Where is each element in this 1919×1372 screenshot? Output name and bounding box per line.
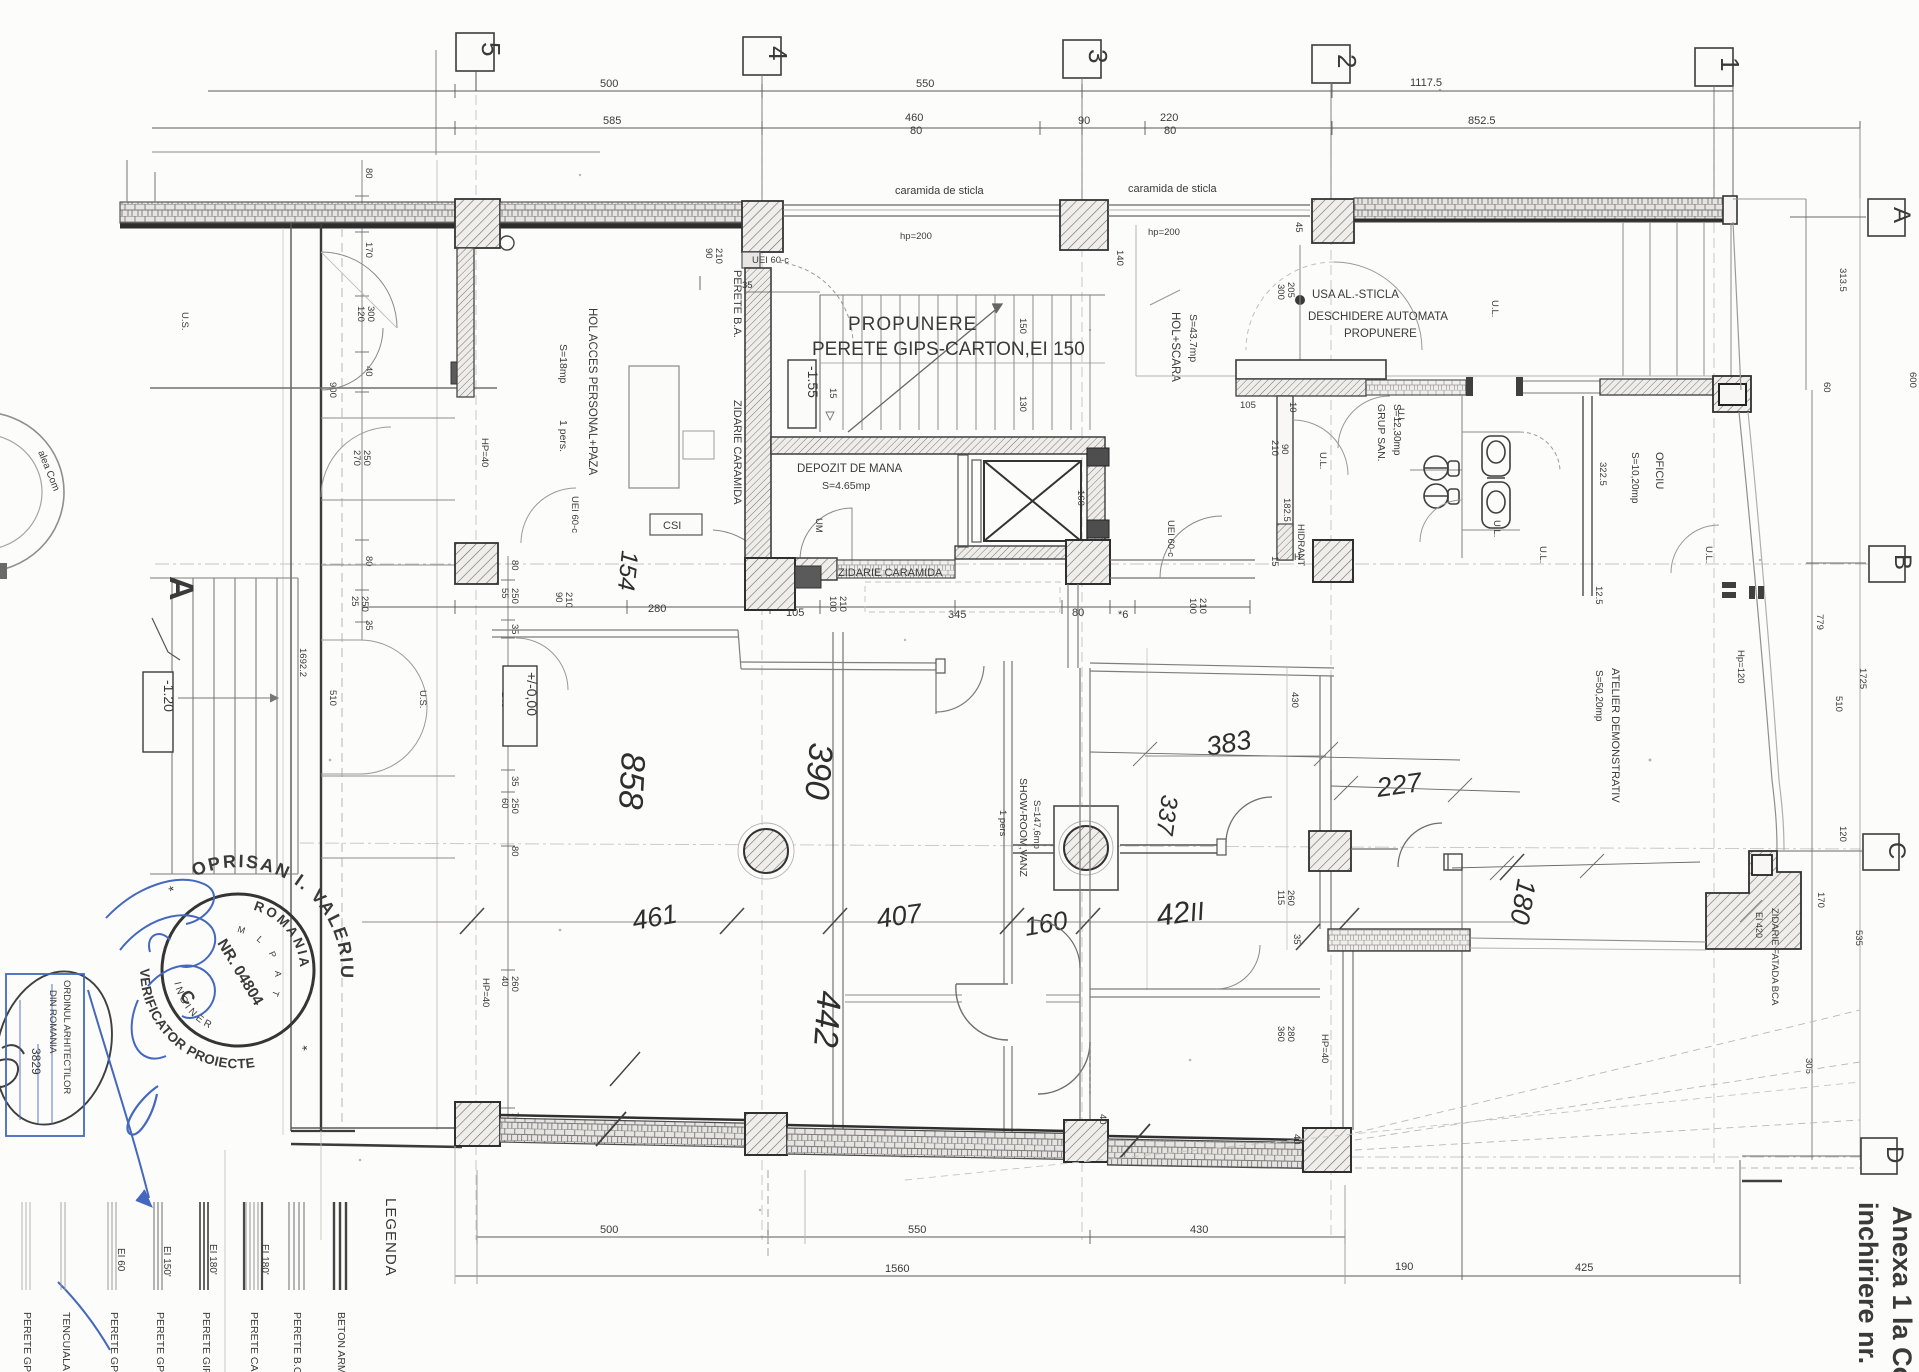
svg-text:337: 337 xyxy=(1150,793,1183,838)
svg-text:90: 90 xyxy=(1078,115,1090,127)
svg-text:caramida de sticla: caramida de sticla xyxy=(895,185,985,197)
svg-text:210: 210 xyxy=(837,596,848,612)
svg-text:442: 442 xyxy=(806,989,848,1048)
svg-text:182.5: 182.5 xyxy=(1281,498,1292,522)
svg-text:-1.20: -1.20 xyxy=(161,680,177,712)
svg-text:1 pers.: 1 pers. xyxy=(557,420,569,452)
svg-text:SHOW-ROOM,VANZ: SHOW-ROOM,VANZ xyxy=(1017,778,1029,877)
svg-text:EI 150': EI 150' xyxy=(161,1246,172,1277)
svg-text:H: H xyxy=(1294,552,1301,563)
svg-text:585: 585 xyxy=(603,115,621,127)
svg-text:HP=40: HP=40 xyxy=(1319,1034,1330,1063)
svg-text:C: C xyxy=(1883,842,1910,859)
svg-text:858: 858 xyxy=(611,752,652,811)
svg-text:ZIDARIE FATADA BCA: ZIDARIE FATADA BCA xyxy=(1769,908,1780,1006)
svg-text:154: 154 xyxy=(612,549,643,592)
svg-text:130: 130 xyxy=(1017,396,1028,412)
svg-text:ORDINUL ARHITECTILOR: ORDINUL ARHITECTILOR xyxy=(61,980,72,1094)
svg-text:D: D xyxy=(1881,1146,1908,1163)
svg-text:PERETE CARAMIDA: PERETE CARAMIDA xyxy=(248,1312,260,1372)
svg-text:852.5: 852.5 xyxy=(1468,115,1496,127)
svg-text:210: 210 xyxy=(563,592,574,608)
svg-text:EI 420: EI 420 xyxy=(1754,912,1764,938)
svg-text:500: 500 xyxy=(600,78,618,90)
svg-text:170: 170 xyxy=(1815,892,1826,908)
svg-text:S=147,6mp: S=147,6mp xyxy=(1031,800,1042,849)
svg-text:90: 90 xyxy=(553,592,564,603)
svg-text:EI 180': EI 180' xyxy=(259,1244,270,1275)
svg-text:430: 430 xyxy=(1289,692,1300,708)
svg-text:210: 210 xyxy=(1269,440,1280,456)
svg-text:150: 150 xyxy=(1017,318,1028,334)
svg-text:U.L.: U.L. xyxy=(1491,520,1502,537)
svg-text:407: 407 xyxy=(875,898,925,934)
svg-text:460: 460 xyxy=(905,112,923,124)
svg-text:45: 45 xyxy=(1293,222,1304,233)
svg-text:550: 550 xyxy=(908,1224,926,1236)
svg-text:DEPOZIT DE MANA: DEPOZIT DE MANA xyxy=(797,463,903,475)
svg-text:ZIDARIE CARAMIDA: ZIDARIE CARAMIDA xyxy=(731,400,743,505)
svg-text:4: 4 xyxy=(763,46,793,60)
svg-text:UEI 60-c: UEI 60-c xyxy=(1165,520,1176,557)
svg-text:15: 15 xyxy=(827,388,838,399)
svg-text:S=18mp: S=18mp xyxy=(557,344,569,384)
svg-text:BETON ARMAT: BETON ARMAT xyxy=(335,1312,347,1372)
svg-text:Hp=120: Hp=120 xyxy=(1735,650,1746,684)
svg-text:ZIDARIE CARAMIDA: ZIDARIE CARAMIDA xyxy=(838,567,943,579)
svg-text:80: 80 xyxy=(509,846,520,857)
svg-text:35: 35 xyxy=(1291,934,1302,945)
svg-text:260: 260 xyxy=(509,976,520,992)
svg-text:S=4.65mp: S=4.65mp xyxy=(822,480,870,492)
svg-text:105: 105 xyxy=(1240,400,1256,411)
svg-text:220: 220 xyxy=(1160,112,1178,124)
svg-text:25: 25 xyxy=(349,596,360,607)
svg-text:UEI 60-c: UEI 60-c xyxy=(569,496,580,533)
svg-text:1560: 1560 xyxy=(885,1263,909,1275)
svg-text:160: 160 xyxy=(1075,490,1086,506)
svg-text:2: 2 xyxy=(1332,54,1362,68)
svg-text:A: A xyxy=(162,576,200,601)
svg-text:550: 550 xyxy=(916,78,934,90)
svg-text:1692.2: 1692.2 xyxy=(297,648,308,677)
svg-text:510: 510 xyxy=(1833,696,1844,712)
svg-text:U.S.: U.S. xyxy=(179,312,190,330)
svg-text:HP=40: HP=40 xyxy=(479,438,490,467)
svg-text:PERETE B.C.A: PERETE B.C.A xyxy=(291,1312,303,1372)
svg-text:S=12,30mp: S=12,30mp xyxy=(1391,404,1402,456)
svg-text:305: 305 xyxy=(1803,1058,1814,1074)
svg-text:100: 100 xyxy=(1187,598,1198,614)
svg-text:1117.5: 1117.5 xyxy=(1410,77,1442,89)
svg-text:190: 190 xyxy=(1395,1261,1413,1273)
svg-text:U.L.: U.L. xyxy=(1489,300,1500,317)
svg-text:hp=200: hp=200 xyxy=(900,231,932,242)
svg-text:55: 55 xyxy=(499,588,510,599)
svg-text:170: 170 xyxy=(363,242,374,258)
svg-text:90: 90 xyxy=(1279,444,1290,455)
svg-text:779: 779 xyxy=(1814,614,1825,630)
svg-text:inchiriere nr.: inchiriere nr. xyxy=(1853,1202,1883,1364)
svg-text:120: 120 xyxy=(1837,826,1848,842)
svg-text:PERETE GPS: PERETE GPS xyxy=(108,1312,120,1372)
svg-text:-1.55: -1.55 xyxy=(805,366,821,398)
svg-text:80: 80 xyxy=(910,125,922,137)
svg-text:60: 60 xyxy=(1821,382,1832,393)
svg-text:300: 300 xyxy=(1275,284,1286,300)
svg-text:DESCHIDERE AUTOMATA: DESCHIDERE AUTOMATA xyxy=(1308,311,1448,323)
svg-text:U.S.: U.S. xyxy=(417,690,428,708)
svg-text:1 pers: 1 pers xyxy=(997,810,1008,837)
svg-text:535: 535 xyxy=(1853,930,1864,946)
svg-text:313.5: 313.5 xyxy=(1837,268,1848,292)
svg-text:35: 35 xyxy=(363,620,374,631)
svg-text:250: 250 xyxy=(509,588,520,604)
svg-text:*6: *6 xyxy=(1118,609,1128,621)
svg-text:140: 140 xyxy=(1114,250,1125,266)
svg-text:60: 60 xyxy=(499,798,510,809)
svg-text:3829: 3829 xyxy=(29,1048,43,1075)
svg-text:270: 270 xyxy=(351,450,362,466)
svg-text:425: 425 xyxy=(1575,1262,1593,1274)
svg-text:EI 60: EI 60 xyxy=(115,1248,126,1272)
svg-text:35: 35 xyxy=(509,624,520,635)
svg-text:CSI: CSI xyxy=(663,520,681,532)
svg-text:Anexa 1 la Co: Anexa 1 la Co xyxy=(1887,1206,1917,1372)
svg-text:1: 1 xyxy=(1715,57,1745,71)
svg-text:1725: 1725 xyxy=(1857,668,1868,689)
svg-text:12.5: 12.5 xyxy=(1593,586,1604,605)
svg-text:280: 280 xyxy=(1285,1026,1296,1042)
svg-text:TENCUIALA U: TENCUIALA U xyxy=(60,1312,72,1372)
svg-text:510: 510 xyxy=(327,690,338,706)
svg-text:250: 250 xyxy=(359,596,370,612)
svg-text:GRUP SAN.: GRUP SAN. xyxy=(1375,404,1387,462)
svg-text:+/-0,00: +/-0,00 xyxy=(524,672,540,716)
svg-text:250: 250 xyxy=(509,798,520,814)
svg-text:280: 280 xyxy=(648,603,666,615)
svg-text:210: 210 xyxy=(1197,598,1208,614)
svg-text:EI 180': EI 180' xyxy=(207,1244,218,1275)
svg-text:10: 10 xyxy=(1287,402,1298,413)
svg-text:80: 80 xyxy=(363,168,374,179)
svg-text:hp=200: hp=200 xyxy=(1148,227,1180,238)
svg-text:B: B xyxy=(1889,554,1916,570)
svg-text:260: 260 xyxy=(1285,890,1296,906)
svg-text:PERETE GIPS-CARTON,EI 150: PERETE GIPS-CARTON,EI 150 xyxy=(812,339,1085,360)
svg-text:U.L.: U.L. xyxy=(1703,546,1714,563)
svg-text:ATELIER DEMONSTRATIV: ATELIER DEMONSTRATIV xyxy=(1609,668,1621,803)
svg-text:PERETE GPS: PERETE GPS xyxy=(154,1312,166,1372)
svg-text:UM: UM xyxy=(813,518,824,533)
svg-text:250: 250 xyxy=(361,450,372,466)
svg-text:80: 80 xyxy=(1164,125,1176,137)
svg-text:90: 90 xyxy=(703,248,714,259)
svg-text:5: 5 xyxy=(476,42,506,56)
svg-text:DIN ROMANIA: DIN ROMANIA xyxy=(47,990,58,1054)
svg-text:3: 3 xyxy=(1083,49,1113,63)
svg-text:PERETE GIPS: PERETE GIPS xyxy=(200,1312,212,1372)
svg-text:35: 35 xyxy=(742,280,753,291)
svg-text:40: 40 xyxy=(499,976,510,987)
svg-text:S=10,20mp: S=10,20mp xyxy=(1629,452,1640,504)
svg-text:U.L.: U.L. xyxy=(1317,452,1328,469)
svg-text:PROPUNERE: PROPUNERE xyxy=(1344,328,1417,340)
svg-text:PERETE GPS: PERETE GPS xyxy=(21,1312,33,1372)
svg-text:35: 35 xyxy=(509,776,520,787)
svg-text:100: 100 xyxy=(827,596,838,612)
svg-text:U.L.: U.L. xyxy=(1537,546,1548,563)
svg-text:S=50,20mp: S=50,20mp xyxy=(1593,670,1604,722)
svg-text:caramida de sticla: caramida de sticla xyxy=(1128,183,1218,195)
svg-text:A: A xyxy=(1888,207,1915,223)
svg-text:600: 600 xyxy=(1907,372,1918,388)
svg-text:430: 430 xyxy=(1190,1224,1208,1236)
svg-text:S=43.7mp: S=43.7mp xyxy=(1187,314,1199,362)
svg-text:HOL+SCARA: HOL+SCARA xyxy=(1169,312,1181,382)
svg-text:HOL ACCES PERSONAL+PAZA: HOL ACCES PERSONAL+PAZA xyxy=(586,308,598,475)
svg-text:115: 115 xyxy=(1275,890,1286,905)
svg-text:LEGENDA: LEGENDA xyxy=(382,1198,399,1277)
svg-text:210: 210 xyxy=(713,248,724,264)
svg-text:OFICIU: OFICIU xyxy=(1653,452,1665,489)
svg-text:80: 80 xyxy=(509,560,520,571)
svg-text:PROPUNERE: PROPUNERE xyxy=(848,314,977,335)
svg-text:40: 40 xyxy=(1097,1114,1108,1125)
svg-text:HP=40: HP=40 xyxy=(480,978,491,1007)
svg-text:300: 300 xyxy=(365,306,376,322)
svg-text:500: 500 xyxy=(600,1224,618,1236)
svg-text:120: 120 xyxy=(355,306,366,322)
svg-text:360: 360 xyxy=(1275,1026,1286,1042)
svg-text:345: 345 xyxy=(948,609,966,621)
svg-text:15: 15 xyxy=(1269,556,1280,567)
svg-text:USA AL.-STICLA: USA AL.-STICLA xyxy=(1312,289,1399,301)
svg-text:UEI 60-c: UEI 60-c xyxy=(752,255,789,266)
svg-text:322.5: 322.5 xyxy=(1597,462,1608,486)
